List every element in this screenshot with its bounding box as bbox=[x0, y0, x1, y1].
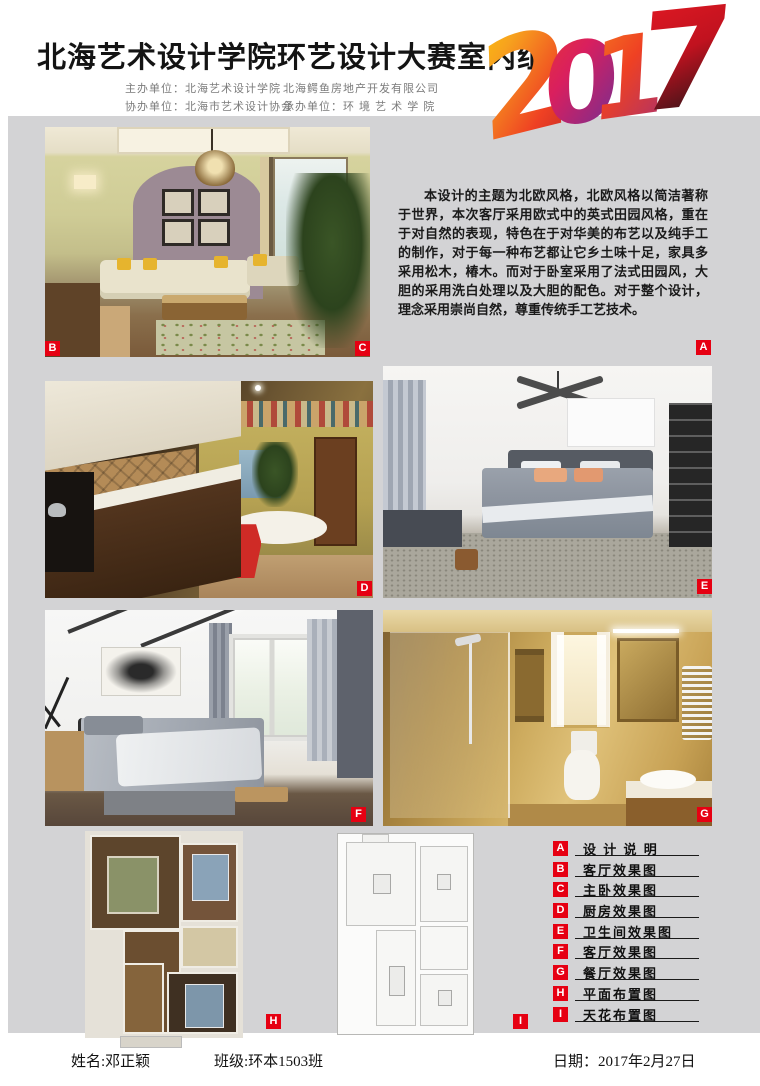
legend-row-a: A 设 计 说 明 bbox=[553, 839, 703, 860]
poster-date: 日期：2017年2月27日 bbox=[553, 1050, 696, 1071]
yellow-pillow-shape bbox=[214, 256, 228, 268]
organizer-host-partner: 北海鳄鱼房地产开发有限公司 bbox=[283, 80, 439, 96]
wall-frame-shape bbox=[198, 189, 230, 216]
dark-curtain-shape bbox=[337, 610, 373, 778]
rug-shape bbox=[104, 791, 235, 815]
legend-key-badge: D bbox=[553, 903, 568, 918]
photo-label-H: H bbox=[266, 1014, 281, 1029]
kitchen-photo: D bbox=[45, 381, 373, 598]
wall-lamp-shape bbox=[74, 175, 96, 189]
ceiling-lamp-mark bbox=[373, 874, 391, 894]
curtain-shape bbox=[383, 380, 426, 515]
yellow-pillow-shape bbox=[117, 258, 131, 270]
photo-label-A: A bbox=[696, 340, 711, 355]
vessel-sink-shape bbox=[640, 770, 696, 789]
pot-shape bbox=[48, 503, 66, 517]
bedroom-photo: F bbox=[45, 610, 373, 826]
legend-label: 卫生间效果图 bbox=[575, 922, 699, 939]
peach-pillow-shape bbox=[574, 468, 604, 482]
plan-bed bbox=[192, 854, 229, 902]
wall-art-shape bbox=[101, 647, 182, 697]
photo-label-B: B bbox=[45, 341, 60, 356]
design-description: 本设计的主题为北欧风格，北欧风格以简洁著称于世界，本次客厅采用欧式中的英式田园风… bbox=[398, 186, 708, 319]
year-digit-7: 7 bbox=[630, 0, 741, 149]
author-class: 班级:环本1503班 bbox=[214, 1050, 323, 1071]
plan-bathroom bbox=[181, 926, 238, 967]
pendant-lantern-shape bbox=[195, 150, 235, 186]
organizer-host: 主办单位：北海艺术设计学院 bbox=[125, 80, 281, 96]
organizer-co-host: 协办单位：北海市艺术设计协会 bbox=[125, 98, 293, 114]
photo-label-D: D bbox=[357, 581, 372, 596]
legend-label: 厨房效果图 bbox=[575, 901, 699, 918]
ceiling-lamp-mark bbox=[389, 966, 405, 996]
year-2017-brush-graphic: 2017 bbox=[443, 0, 760, 209]
sheer-curtain-shape bbox=[597, 632, 610, 727]
duvet-shape bbox=[116, 727, 263, 786]
author-name: 姓名:邓正颖 bbox=[71, 1050, 150, 1071]
shower-glass-shape bbox=[390, 632, 510, 819]
lamp-stem-shape bbox=[211, 129, 213, 151]
legend-label: 平面布置图 bbox=[575, 984, 699, 1001]
curtain-shape bbox=[307, 619, 337, 762]
ceiling-plan bbox=[337, 833, 474, 1035]
yellow-pillow-shape bbox=[253, 254, 267, 266]
ceiling-spotlight-shape bbox=[255, 385, 261, 391]
mirror-light-shape bbox=[613, 629, 679, 633]
yellow-pillow-shape bbox=[143, 258, 157, 270]
photo-label-I: I bbox=[513, 1014, 528, 1029]
ceiling-shape bbox=[383, 610, 712, 632]
mirror-cabinet-shape bbox=[617, 638, 679, 722]
legend-key-badge: G bbox=[553, 965, 568, 980]
competition-poster: 北海艺术设计学院环艺设计大赛室内组 主办单位：北海艺术设计学院 北海鳄鱼房地产开… bbox=[0, 0, 760, 1086]
legend-label: 设 计 说 明 bbox=[575, 839, 699, 856]
wall-panel-shape bbox=[567, 398, 655, 446]
plant-shape bbox=[252, 442, 298, 507]
bathroom-photo: G bbox=[383, 610, 712, 826]
tv-cabinet-shape bbox=[383, 510, 462, 547]
legend-label: 天花布置图 bbox=[575, 1005, 699, 1022]
organizer-undertaker: 承办单位：环 境 艺 术 学 院 bbox=[283, 98, 435, 114]
coffee-table-shape bbox=[162, 295, 247, 320]
legend-key-badge: C bbox=[553, 882, 568, 897]
legend-row-i: I 天花布置图 bbox=[553, 1005, 703, 1026]
towel-radiator-shape bbox=[682, 666, 712, 739]
plan-kitchen bbox=[123, 963, 164, 1033]
legend-row-f: F 客厅效果图 bbox=[553, 942, 703, 963]
legend-row-c: C 主卧效果图 bbox=[553, 880, 703, 901]
legend-row-b: B 客厅效果图 bbox=[553, 860, 703, 881]
legend-row-e: E 卫生间效果图 bbox=[553, 922, 703, 943]
legend-label: 客厅效果图 bbox=[575, 860, 699, 877]
legend-key-badge: A bbox=[553, 841, 568, 856]
ceiling-lamp-mark bbox=[437, 874, 451, 890]
linear-pendant-light-shape bbox=[67, 610, 148, 634]
legend-row-g: G 餐厅效果图 bbox=[553, 963, 703, 984]
wall-frame-shape bbox=[162, 189, 194, 216]
peach-pillow-shape bbox=[534, 468, 567, 482]
desk-shape bbox=[45, 731, 84, 791]
bench-shape bbox=[235, 787, 287, 802]
ceiling-lamp-mark bbox=[438, 990, 452, 1006]
pillow-shape bbox=[84, 716, 143, 735]
niche-shelf-shape bbox=[515, 649, 545, 722]
legend-key-badge: H bbox=[553, 986, 568, 1001]
photo-label-E: E bbox=[697, 579, 712, 594]
plan-bed bbox=[185, 984, 225, 1027]
legend-key-badge: E bbox=[553, 924, 568, 939]
sheer-curtain-shape bbox=[551, 632, 564, 727]
plant-shape bbox=[286, 173, 371, 348]
bag-shape bbox=[455, 549, 478, 570]
shower-pole-shape bbox=[469, 640, 472, 744]
legend-key-badge: F bbox=[553, 944, 568, 959]
plan-balcony bbox=[120, 1036, 182, 1048]
legend-row-d: D 厨房效果图 bbox=[553, 901, 703, 922]
plan-rug bbox=[107, 856, 158, 914]
wall-frame-shape bbox=[198, 219, 230, 246]
master-bedroom-photo: E bbox=[383, 366, 712, 598]
stove-shape bbox=[45, 472, 94, 572]
floor-plan bbox=[85, 831, 243, 1038]
legend-label: 餐厅效果图 bbox=[575, 963, 699, 980]
legend-label: 客厅效果图 bbox=[575, 942, 699, 959]
legend-key-badge: B bbox=[553, 862, 568, 877]
photo-label-G: G bbox=[697, 807, 712, 822]
photo-label-C: C bbox=[355, 341, 370, 356]
toilet-shape bbox=[564, 750, 600, 800]
plan-outline bbox=[420, 926, 467, 970]
legend-label: 主卧效果图 bbox=[575, 880, 699, 897]
legend-row-h: H 平面布置图 bbox=[553, 984, 703, 1005]
metal-shelf-shape bbox=[669, 403, 712, 547]
photo-label-F: F bbox=[351, 807, 366, 822]
legend: A 设 计 说 明 B 客厅效果图 C 主卧效果图 D 厨房效果图 E 卫生间效… bbox=[553, 839, 703, 1025]
legend-key-badge: I bbox=[553, 1007, 568, 1022]
living-room-photo: B C bbox=[45, 127, 370, 357]
ceiling-recess-shape bbox=[117, 127, 290, 154]
wall-frame-shape bbox=[162, 219, 194, 246]
